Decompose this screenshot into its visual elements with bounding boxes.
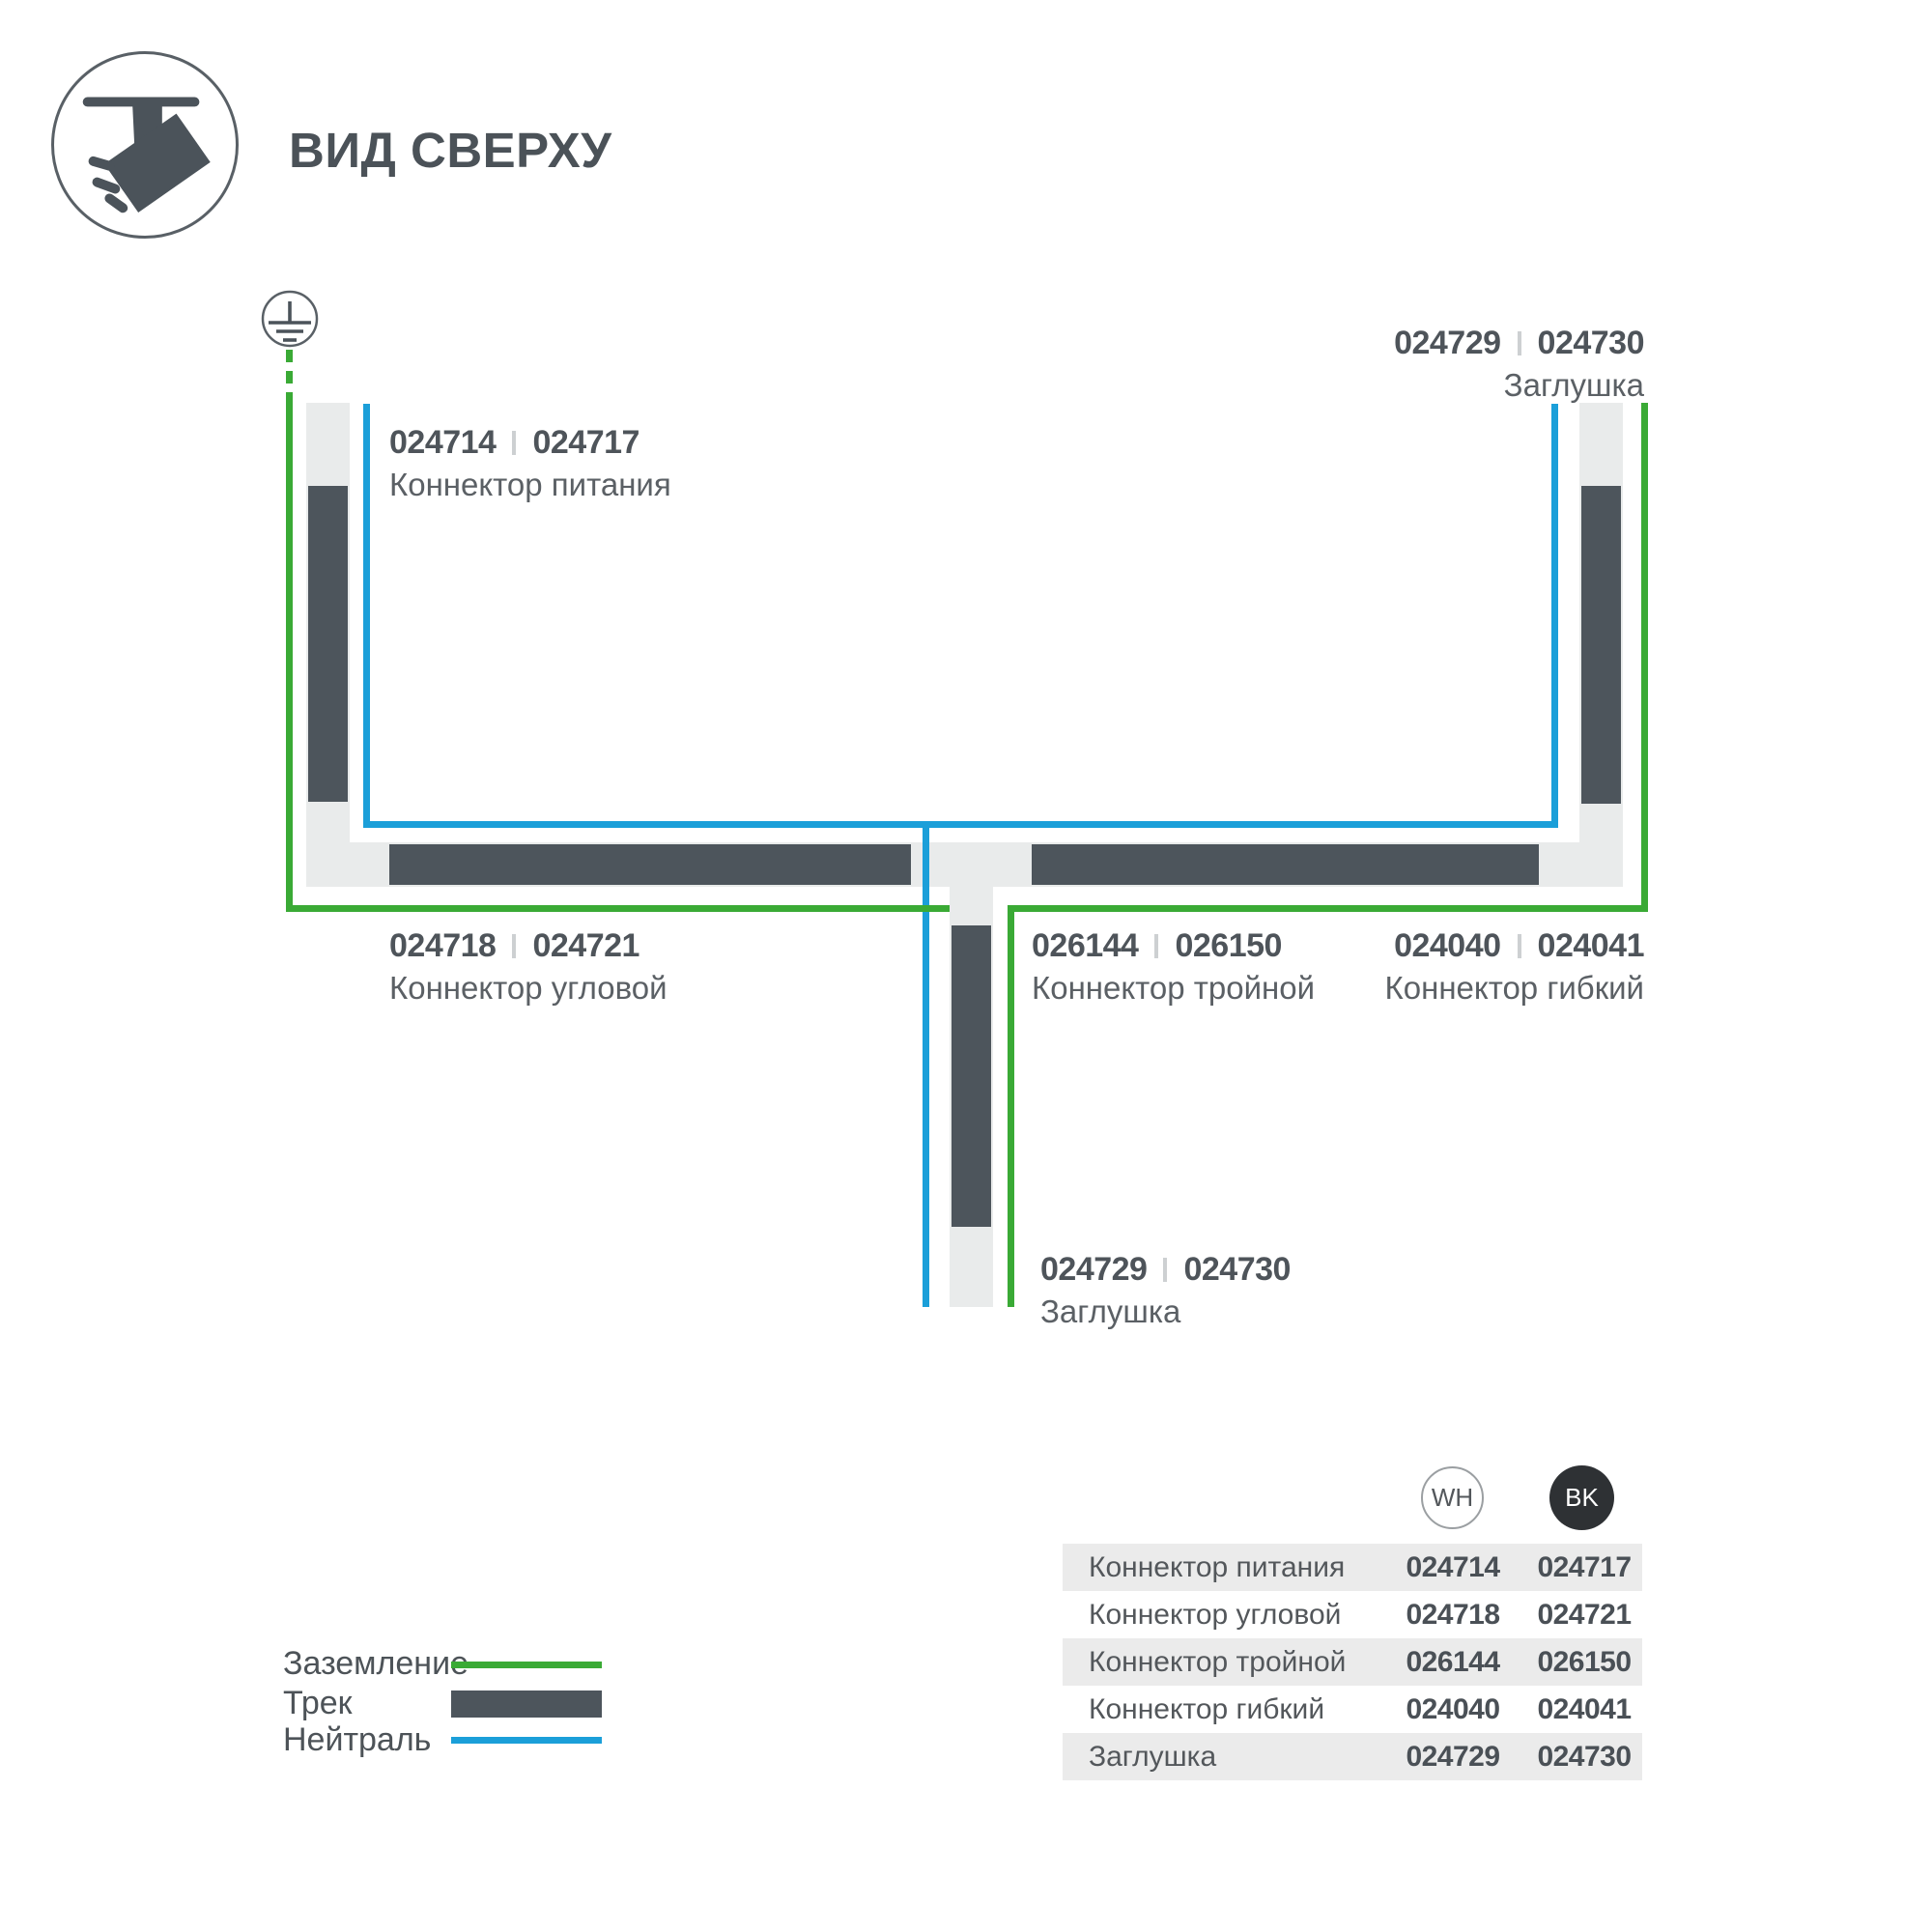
table-row: Заглушка 024729 024730 [1063,1733,1642,1780]
ground-line-horizontal-right [1008,905,1648,912]
row-name: Коннектор питания [1063,1551,1379,1584]
label-codes: 024729024730 [1394,327,1644,359]
legend-label-ground: Заземление [283,1645,469,1683]
row-wh-code: 024729 [1379,1741,1526,1774]
row-bk-code: 024721 [1526,1599,1642,1632]
label-name: Коннектор гибкий [1385,972,1644,1004]
track-segment-left [308,486,348,802]
ground-line-horizontal-left [286,905,950,912]
row-name: Коннектор угловой [1063,1599,1379,1632]
neutral-line-middle [923,824,929,1307]
label-corner-connector: 024718024721 Коннектор угловой [389,929,668,1004]
track-segment-middle [952,925,991,1227]
earth-ground-icon [261,290,319,348]
column-badge-white: WH [1421,1466,1484,1529]
row-name: Коннектор тройной [1063,1646,1379,1679]
label-name: Заглушка [1394,369,1644,401]
ground-line-right [1641,403,1648,912]
code-separator [1518,331,1521,355]
code-separator [1518,934,1521,958]
label-name: Заглушка [1040,1295,1291,1327]
page: { "header": { "title": "ВИД СВЕРХУ" }, "… [0,0,1932,1932]
label-power-connector: 024714024717 Коннектор питания [389,426,671,500]
label-end-cap-top: 024729024730 Заглушка [1394,327,1644,401]
label-end-cap-bottom: 024729024730 Заглушка [1040,1253,1291,1327]
table-row: Коннектор угловой 024718 024721 [1063,1591,1642,1638]
label-name: Коннектор питания [389,469,671,500]
neutral-line-horizontal [363,821,1558,828]
part-number-table: WH BK Коннектор питания 024714 024717 Ко… [1063,1466,1642,1780]
label-codes: 024040024041 [1385,929,1644,962]
table-header: WH BK [1063,1466,1642,1544]
spotlight-track-icon [54,54,236,236]
label-codes: 024714024717 [389,426,671,459]
label-codes: 024718024721 [389,929,668,962]
row-name: Коннектор гибкий [1063,1693,1379,1726]
legend-track-bar-swatch [451,1690,602,1718]
label-codes: 026144026150 [1032,929,1315,962]
row-bk-code: 024717 [1526,1551,1642,1584]
table-row: Коннектор гибкий 024040 024041 [1063,1686,1642,1733]
code-separator [1163,1258,1167,1282]
neutral-line-left [363,404,370,828]
track-segment-right [1581,486,1621,804]
top-view-icon-badge [51,51,239,239]
row-wh-code: 024040 [1379,1693,1526,1726]
ground-line-left [286,400,293,912]
legend-label-track: Трек [283,1685,353,1722]
label-triple-connector: 026144026150 Коннектор тройной [1032,929,1315,1004]
row-bk-code: 024041 [1526,1693,1642,1726]
label-codes: 024729024730 [1040,1253,1291,1286]
row-wh-code: 024718 [1379,1599,1526,1632]
label-flexible-connector: 024040024041 Коннектор гибкий [1385,929,1644,1004]
row-wh-code: 026144 [1379,1646,1526,1679]
code-separator [1154,934,1158,958]
table-row: Коннектор тройной 026144 026150 [1063,1638,1642,1686]
ground-line-middle [1008,905,1014,1307]
neutral-line-right [1551,404,1558,828]
table-row: Коннектор питания 024714 024717 [1063,1544,1642,1591]
legend-label-neutral: Нейтраль [283,1721,431,1759]
column-badge-black: BK [1549,1465,1614,1530]
ground-line-dashed [286,350,293,402]
label-name: Коннектор угловой [389,972,668,1004]
table-body: Коннектор питания 024714 024717 Коннекто… [1063,1544,1642,1780]
code-separator [512,934,516,958]
page-title: ВИД СВЕРХУ [289,122,611,179]
row-wh-code: 024714 [1379,1551,1526,1584]
row-bk-code: 024730 [1526,1741,1642,1774]
legend-ground-line-swatch [451,1662,602,1668]
legend-neutral-line-swatch [451,1737,602,1744]
label-name: Коннектор тройной [1032,972,1315,1004]
track-segment-horizontal-left [389,844,911,885]
row-bk-code: 026150 [1526,1646,1642,1679]
code-separator [512,431,516,455]
row-name: Заглушка [1063,1741,1379,1774]
track-segment-horizontal-right [1032,844,1539,885]
